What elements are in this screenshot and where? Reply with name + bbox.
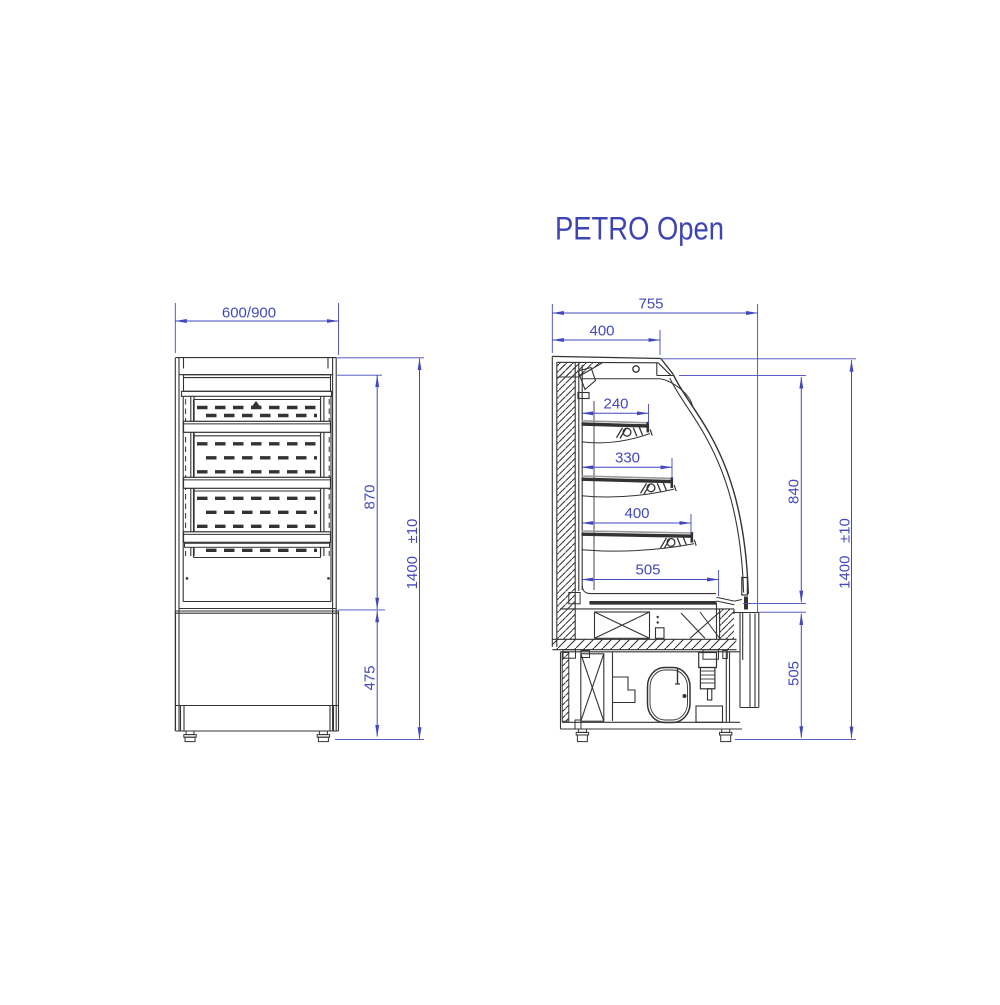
svg-text:330: 330	[615, 449, 640, 466]
svg-text:840: 840	[785, 479, 802, 504]
svg-text:400: 400	[624, 505, 649, 522]
svg-text:600/900: 600/900	[222, 305, 276, 322]
svg-text:475: 475	[361, 665, 378, 690]
svg-text:240: 240	[603, 395, 628, 412]
svg-text:505: 505	[785, 661, 802, 686]
svg-text:870: 870	[361, 484, 378, 509]
svg-text:755: 755	[638, 296, 663, 313]
svg-text:505: 505	[635, 562, 660, 579]
svg-text:1400 ±10: 1400 ±10	[404, 519, 421, 590]
svg-text:400: 400	[589, 323, 614, 340]
svg-text:PETRO Open: PETRO Open	[555, 211, 724, 247]
svg-text:1400 ±10: 1400 ±10	[836, 518, 853, 589]
